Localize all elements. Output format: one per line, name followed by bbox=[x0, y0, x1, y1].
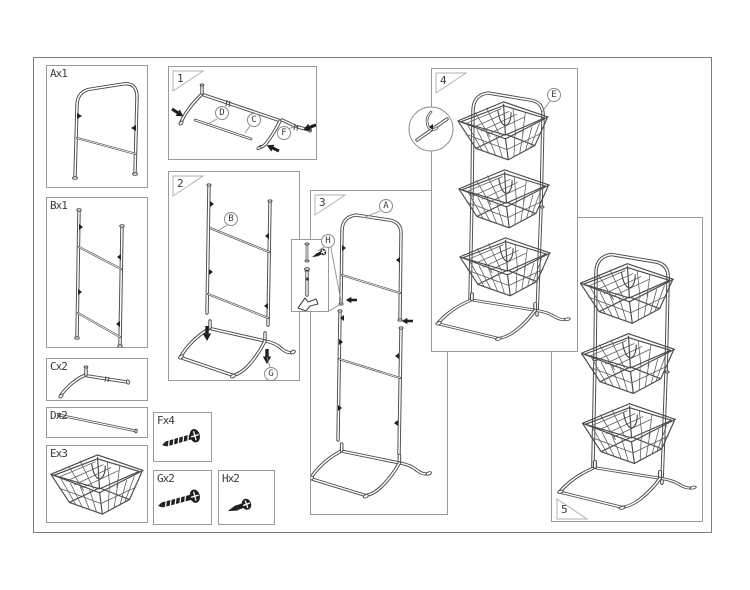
step-box-2: 2 bbox=[168, 171, 300, 381]
part-label-a: Ax1 bbox=[50, 67, 67, 80]
callout-a: A bbox=[379, 199, 393, 213]
hardware-label-g: Gx2 bbox=[157, 472, 174, 485]
callout-d: D bbox=[215, 106, 229, 120]
drawing-step1-feet bbox=[169, 67, 316, 159]
part-label-c: Cx2 bbox=[50, 360, 67, 373]
part-box-c: Cx2 bbox=[46, 358, 148, 401]
callout-e: E bbox=[547, 88, 561, 102]
hardware-box-h: Hx2 bbox=[218, 470, 275, 525]
step-number-4: 4 bbox=[440, 74, 447, 87]
callout-d-label: D bbox=[219, 108, 224, 118]
drawing-pole-joint-detail bbox=[292, 240, 328, 311]
drawing-arch-frame bbox=[47, 66, 147, 187]
callout-e-label: E bbox=[551, 90, 556, 100]
step-number-3: 3 bbox=[319, 196, 326, 209]
hardware-box-f: Fx4 bbox=[153, 412, 212, 462]
assembly-instruction-sheet: Ax1 Bx1 Cx2 bbox=[0, 0, 750, 590]
part-label-d: Dx2 bbox=[50, 409, 67, 422]
step-number-1: 1 bbox=[177, 72, 184, 85]
hardware-box-g: Gx2 bbox=[153, 470, 212, 525]
callout-f-label: F bbox=[281, 128, 286, 138]
callout-c-label: C bbox=[251, 115, 256, 125]
part-box-b: Bx1 bbox=[46, 197, 148, 348]
hardware-label-f: Fx4 bbox=[157, 414, 174, 427]
callout-g: G bbox=[264, 367, 278, 381]
callout-b-label: B bbox=[228, 214, 233, 224]
step-box-4: 4 bbox=[431, 68, 578, 352]
callout-f: F bbox=[277, 126, 291, 140]
hardware-label-h: Hx2 bbox=[222, 472, 239, 485]
part-box-e: Ex3 bbox=[46, 445, 148, 523]
part-box-a: Ax1 bbox=[46, 65, 148, 188]
part-label-e: Ex3 bbox=[50, 447, 67, 460]
step-number-5: 5 bbox=[561, 503, 568, 516]
callout-g-label: G bbox=[268, 369, 273, 379]
callout-a-label: A bbox=[383, 201, 388, 211]
part-label-b: Bx1 bbox=[50, 199, 67, 212]
drawing-side-posts bbox=[47, 198, 147, 347]
step-box-1: 1 bbox=[168, 66, 317, 160]
callout-h: H bbox=[321, 234, 335, 248]
part-box-d: Dx2 bbox=[46, 407, 148, 438]
callout-b: B bbox=[224, 212, 238, 226]
detail-inset-box bbox=[291, 239, 329, 312]
drawing-step2-posts-on-feet bbox=[169, 172, 299, 380]
drawing-step4-hang-baskets bbox=[432, 69, 577, 351]
callout-c: C bbox=[247, 113, 261, 127]
callout-h-label: H bbox=[325, 236, 330, 246]
step-number-2: 2 bbox=[177, 177, 184, 190]
